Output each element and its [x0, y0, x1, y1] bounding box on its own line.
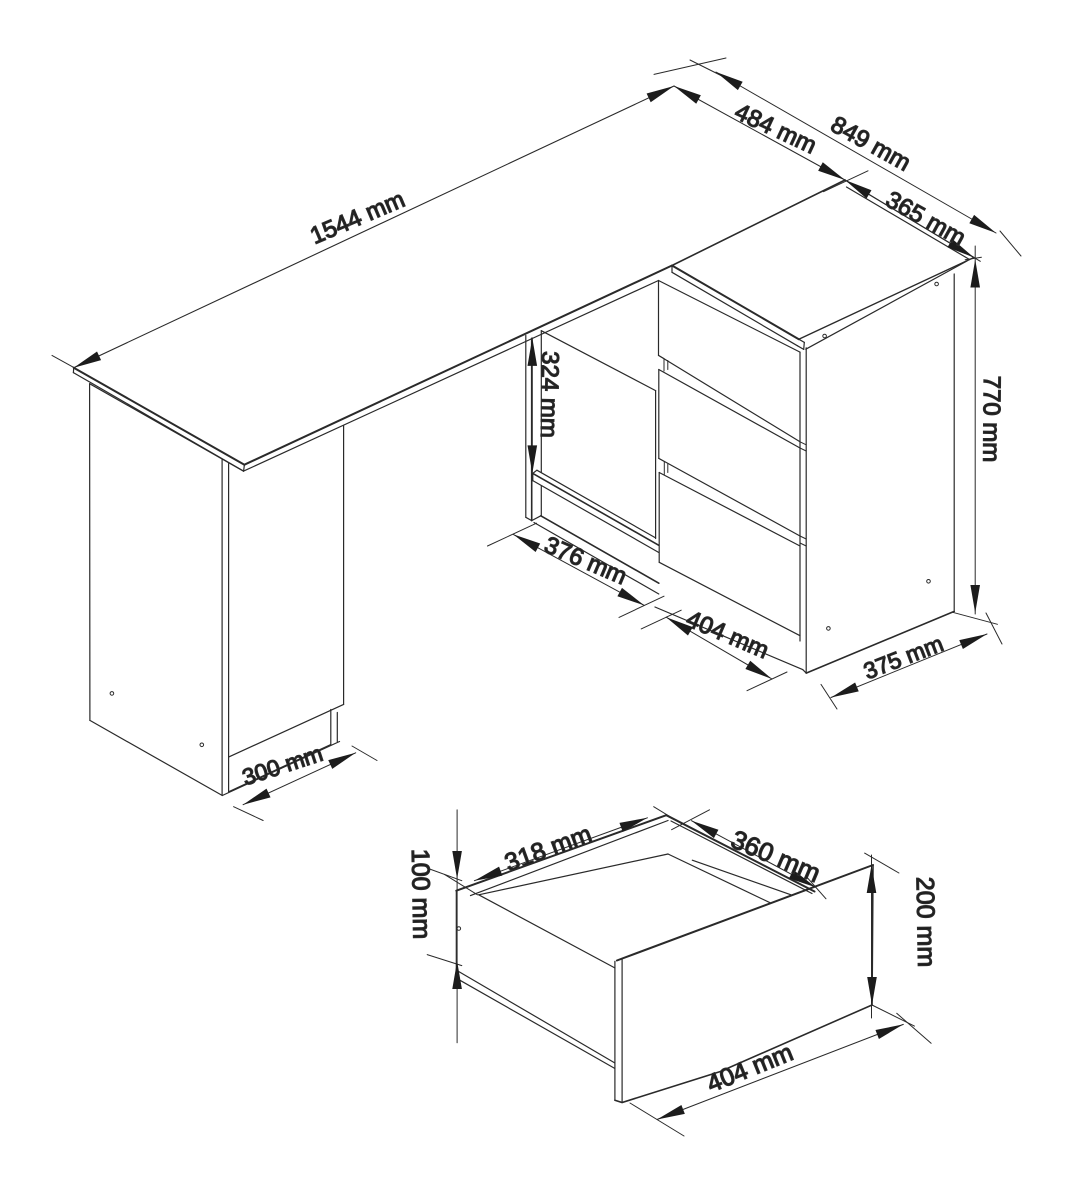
- svg-text:404 mm: 404 mm: [703, 1038, 797, 1098]
- svg-text:770 mm: 770 mm: [977, 376, 1005, 463]
- svg-text:100 mm: 100 mm: [406, 849, 436, 940]
- svg-text:376 mm: 376 mm: [540, 532, 630, 591]
- svg-text:360 mm: 360 mm: [727, 824, 825, 888]
- svg-text:375 mm: 375 mm: [860, 630, 947, 684]
- svg-text:484 mm: 484 mm: [730, 98, 820, 159]
- svg-text:318 mm: 318 mm: [501, 820, 595, 877]
- svg-text:324 mm: 324 mm: [535, 351, 564, 438]
- svg-text:365 mm: 365 mm: [881, 186, 970, 252]
- svg-text:200 mm: 200 mm: [911, 877, 941, 968]
- svg-text:849 mm: 849 mm: [826, 111, 915, 177]
- svg-text:300 mm: 300 mm: [239, 740, 326, 790]
